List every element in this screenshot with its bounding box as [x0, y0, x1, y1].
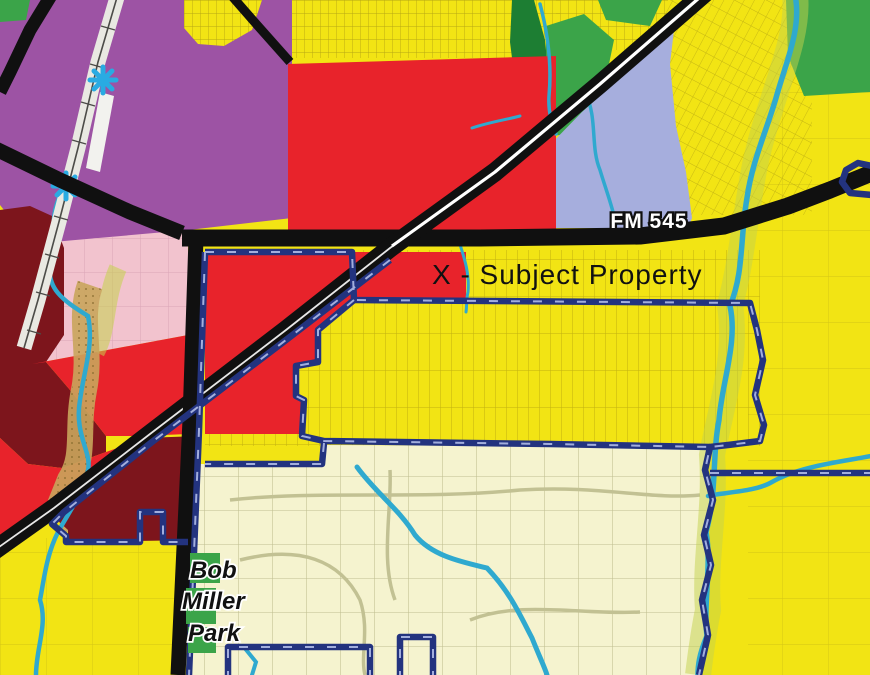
park-label-line3: Park — [188, 620, 242, 647]
zone-purple — [0, 0, 292, 243]
park-label-line1: Bob — [190, 557, 237, 584]
park-label-line2: Miller — [182, 588, 246, 615]
zone-green-corner — [0, 0, 30, 22]
rail-crossing-asterisk-icon — [90, 67, 116, 93]
highway-label: FM 545 — [610, 210, 687, 233]
map-canvas: FM 545 X - Subject Property Bob Miller P… — [0, 0, 870, 675]
subject-property-label: X - Subject Property — [432, 259, 703, 290]
zoning-map: FM 545 X - Subject Property Bob Miller P… — [0, 0, 870, 675]
